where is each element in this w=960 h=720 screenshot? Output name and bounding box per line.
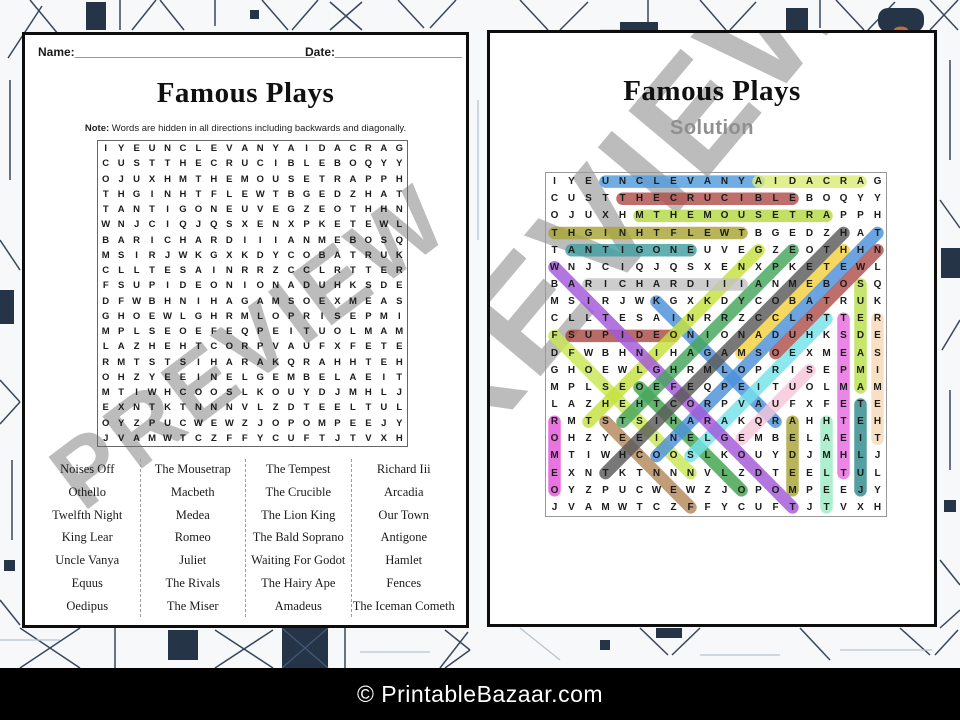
- grid-letter: S: [113, 248, 128, 263]
- grid-letter: D: [716, 293, 733, 310]
- grid-letter: I: [191, 294, 206, 309]
- grid-letter: U: [750, 499, 767, 516]
- grid-letter: H: [206, 172, 221, 187]
- grid-letter: W: [160, 431, 175, 446]
- grid-letter: F: [98, 278, 113, 293]
- grid-letter: E: [129, 141, 144, 156]
- grid-letter: B: [750, 224, 767, 241]
- grid-letter: X: [283, 217, 298, 232]
- grid-letter: O: [801, 379, 818, 396]
- grid-letter: D: [784, 173, 801, 190]
- grid-letter: Z: [580, 396, 597, 413]
- grid-letter: V: [268, 339, 283, 354]
- grid-letter: D: [784, 447, 801, 464]
- grid-letter: E: [614, 430, 631, 447]
- grid-letter: K: [252, 385, 267, 400]
- grid-letter: E: [237, 187, 252, 202]
- grid-letter: R: [299, 309, 314, 324]
- grid-letter: E: [191, 324, 206, 339]
- grid-letter: Q: [835, 190, 852, 207]
- grid-letter: G: [648, 362, 665, 379]
- grid-letter: L: [546, 396, 563, 413]
- grid-letter: T: [614, 413, 631, 430]
- grid-letter: S: [222, 217, 237, 232]
- grid-letter: Z: [268, 400, 283, 415]
- grid-letter: I: [869, 362, 886, 379]
- grid-letter: O: [175, 324, 190, 339]
- grid-letter: I: [160, 202, 175, 217]
- grid-letter: B: [345, 233, 360, 248]
- grid-letter: N: [206, 370, 221, 385]
- word-list-column: Richard IiiArcadiaOur TownAntigoneHamlet…: [351, 459, 457, 617]
- grid-letter: W: [716, 224, 733, 241]
- grid-letter: F: [682, 499, 699, 516]
- grid-letter: S: [631, 310, 648, 327]
- grid-letter: N: [682, 465, 699, 482]
- grid-letter: A: [852, 173, 869, 190]
- grid-letter: A: [283, 233, 298, 248]
- grid-letter: F: [237, 431, 252, 446]
- grid-letter: E: [191, 156, 206, 171]
- grid-letter: E: [330, 217, 345, 232]
- grid-letter: A: [716, 344, 733, 361]
- grid-letter: M: [283, 370, 298, 385]
- grid-letter: G: [546, 362, 563, 379]
- grid-letter: B: [283, 187, 298, 202]
- grid-letter: C: [175, 385, 190, 400]
- grid-letter: A: [852, 344, 869, 361]
- grid-letter: A: [750, 327, 767, 344]
- grid-letter: E: [330, 233, 345, 248]
- word-list-column: The TempestThe CrucibleThe Lion KingThe …: [245, 459, 351, 617]
- grid-letter: A: [113, 233, 128, 248]
- grid-letter: A: [750, 276, 767, 293]
- grid-letter: U: [160, 416, 175, 431]
- grid-letter: E: [835, 482, 852, 499]
- grid-letter: E: [144, 309, 159, 324]
- solution-label: Solution: [490, 117, 934, 140]
- word-list-item: Our Town: [352, 506, 457, 525]
- grid-letter: O: [206, 385, 221, 400]
- grid-letter: C: [546, 310, 563, 327]
- grid-letter: L: [767, 190, 784, 207]
- solution-page-title: Famous Plays: [490, 75, 934, 108]
- grid-letter: H: [144, 339, 159, 354]
- grid-letter: R: [361, 248, 376, 263]
- grid-letter: C: [268, 431, 283, 446]
- grid-letter: Y: [767, 447, 784, 464]
- grid-letter: T: [98, 187, 113, 202]
- grid-letter: U: [283, 431, 298, 446]
- grid-letter: H: [665, 207, 682, 224]
- grid-letter: L: [852, 447, 869, 464]
- grid-letter: W: [191, 416, 206, 431]
- grid-letter: U: [852, 293, 869, 310]
- grid-letter: A: [376, 324, 391, 339]
- grid-letter: L: [252, 309, 267, 324]
- grid-letter: J: [580, 259, 597, 276]
- grid-letter: T: [563, 447, 580, 464]
- grid-letter: M: [546, 379, 563, 396]
- grid-letter: B: [299, 370, 314, 385]
- grid-letter: C: [191, 431, 206, 446]
- grid-letter: E: [597, 362, 614, 379]
- grid-letter: B: [144, 294, 159, 309]
- grid-letter: T: [191, 187, 206, 202]
- grid-letter: A: [237, 141, 252, 156]
- grid-letter: V: [716, 242, 733, 259]
- grid-letter: T: [345, 202, 360, 217]
- grid-letter: N: [191, 400, 206, 415]
- grid-letter: I: [376, 370, 391, 385]
- grid-letter: J: [801, 499, 818, 516]
- grid-letter: T: [191, 172, 206, 187]
- solution-grid: IYEUNCLEVANYAIDACRAGCUSTTHECRUCIBLEBOQYY…: [545, 172, 887, 517]
- grid-letter: M: [869, 379, 886, 396]
- grid-letter: Q: [361, 156, 376, 171]
- grid-letter: A: [580, 499, 597, 516]
- grid-letter: Y: [716, 499, 733, 516]
- grid-letter: U: [597, 173, 614, 190]
- grid-letter: U: [144, 141, 159, 156]
- grid-letter: W: [129, 294, 144, 309]
- grid-letter: N: [563, 259, 580, 276]
- word-list-item: Richard Iii: [352, 460, 457, 479]
- grid-letter: I: [580, 293, 597, 310]
- grid-letter: T: [345, 431, 360, 446]
- grid-letter: P: [283, 309, 298, 324]
- grid-letter: E: [191, 278, 206, 293]
- grid-letter: Q: [699, 379, 716, 396]
- grid-letter: N: [733, 327, 750, 344]
- grid-letter: P: [597, 482, 614, 499]
- grid-letter: K: [699, 293, 716, 310]
- grid-letter: C: [818, 173, 835, 190]
- grid-letter: T: [818, 310, 835, 327]
- name-field: Name:___________________________________…: [38, 45, 315, 59]
- grid-letter: O: [330, 324, 345, 339]
- grid-letter: C: [767, 310, 784, 327]
- grid-letter: O: [546, 430, 563, 447]
- grid-letter: C: [206, 339, 221, 354]
- grid-letter: T: [314, 172, 329, 187]
- grid-letter: Y: [252, 431, 267, 446]
- grid-letter: Q: [175, 217, 190, 232]
- grid-letter: E: [160, 324, 175, 339]
- word-list-item: Oedipus: [35, 597, 140, 616]
- grid-letter: O: [299, 416, 314, 431]
- grid-letter: N: [268, 217, 283, 232]
- grid-letter: R: [546, 413, 563, 430]
- grid-letter: C: [733, 499, 750, 516]
- grid-letter: E: [268, 370, 283, 385]
- grid-letter: W: [144, 385, 159, 400]
- grid-letter: P: [835, 362, 852, 379]
- grid-letter: I: [665, 310, 682, 327]
- grid-letter: J: [563, 207, 580, 224]
- grid-letter: M: [113, 355, 128, 370]
- grid-letter: D: [376, 278, 391, 293]
- grid-letter: L: [252, 400, 267, 415]
- grid-letter: F: [206, 324, 221, 339]
- grid-letter: E: [580, 173, 597, 190]
- grid-letter: U: [580, 327, 597, 344]
- grid-letter: A: [563, 242, 580, 259]
- grid-letter: A: [283, 278, 298, 293]
- grid-letter: M: [852, 362, 869, 379]
- grid-letter: S: [392, 294, 407, 309]
- grid-letter: N: [682, 310, 699, 327]
- grid-letter: W: [546, 259, 563, 276]
- grid-letter: P: [299, 217, 314, 232]
- grid-letter: P: [750, 482, 767, 499]
- grid-letter: M: [376, 309, 391, 324]
- grid-letter: I: [268, 156, 283, 171]
- grid-letter: K: [392, 248, 407, 263]
- grid-letter: G: [716, 430, 733, 447]
- grid-letter: V: [682, 173, 699, 190]
- grid-letter: U: [376, 248, 391, 263]
- grid-letter: M: [144, 431, 159, 446]
- word-list-item: The Mousetrap: [141, 460, 246, 479]
- grid-letter: S: [801, 362, 818, 379]
- grid-letter: M: [98, 324, 113, 339]
- grid-letter: O: [580, 362, 597, 379]
- grid-letter: T: [580, 413, 597, 430]
- grid-letter: I: [648, 430, 665, 447]
- grid-letter: A: [852, 379, 869, 396]
- grid-letter: H: [835, 447, 852, 464]
- grid-letter: D: [175, 278, 190, 293]
- grid-letter: I: [206, 263, 221, 278]
- grid-letter: R: [699, 310, 716, 327]
- grid-letter: N: [614, 224, 631, 241]
- grid-letter: I: [299, 141, 314, 156]
- grid-letter: T: [733, 224, 750, 241]
- grid-letter: A: [191, 233, 206, 248]
- grid-letter: O: [767, 293, 784, 310]
- grid-letter: M: [699, 362, 716, 379]
- grid-letter: T: [767, 379, 784, 396]
- grid-letter: N: [222, 400, 237, 415]
- grid-letter: E: [648, 327, 665, 344]
- grid-letter: N: [129, 202, 144, 217]
- grid-letter: F: [699, 499, 716, 516]
- grid-letter: H: [345, 355, 360, 370]
- grid-letter: U: [113, 156, 128, 171]
- grid-letter: F: [665, 379, 682, 396]
- grid-letter: G: [869, 173, 886, 190]
- grid-letter: T: [597, 465, 614, 482]
- grid-letter: B: [801, 190, 818, 207]
- word-list-item: The Bald Soprano: [246, 528, 351, 547]
- grid-letter: R: [330, 172, 345, 187]
- grid-letter: M: [835, 379, 852, 396]
- grid-letter: T: [361, 355, 376, 370]
- grid-letter: Z: [767, 242, 784, 259]
- grid-letter: Q: [750, 413, 767, 430]
- grid-letter: L: [113, 263, 128, 278]
- grid-letter: T: [631, 465, 648, 482]
- grid-letter: E: [222, 202, 237, 217]
- grid-letter: E: [801, 465, 818, 482]
- grid-letter: M: [563, 413, 580, 430]
- word-list-item: Waiting For Godot: [246, 551, 351, 570]
- grid-letter: F: [784, 396, 801, 413]
- grid-letter: L: [818, 465, 835, 482]
- grid-letter: X: [330, 294, 345, 309]
- page-title: Famous Plays: [25, 77, 466, 110]
- grid-letter: L: [716, 362, 733, 379]
- grid-letter: E: [631, 430, 648, 447]
- grid-letter: O: [818, 190, 835, 207]
- grid-letter: K: [191, 248, 206, 263]
- grid-letter: T: [784, 207, 801, 224]
- grid-letter: L: [345, 400, 360, 415]
- grid-letter: N: [175, 294, 190, 309]
- grid-letter: Z: [580, 430, 597, 447]
- grid-letter: O: [129, 309, 144, 324]
- grid-letter: W: [597, 447, 614, 464]
- word-list-item: The Miser: [141, 597, 246, 616]
- grid-letter: Z: [699, 482, 716, 499]
- grid-letter: A: [330, 248, 345, 263]
- grid-letter: N: [733, 259, 750, 276]
- grid-letter: H: [563, 224, 580, 241]
- grid-letter: B: [283, 156, 298, 171]
- date-line: ___________________: [335, 45, 462, 59]
- grid-letter: G: [237, 294, 252, 309]
- grid-letter: N: [268, 278, 283, 293]
- grid-letter: I: [784, 362, 801, 379]
- solution-page: PREVIEW Famous Plays Solution IYEUNCLEVA…: [487, 30, 937, 627]
- grid-letter: N: [580, 465, 597, 482]
- grid-letter: Q: [283, 355, 298, 370]
- grid-letter: I: [614, 242, 631, 259]
- grid-letter: H: [614, 344, 631, 361]
- grid-letter: R: [299, 355, 314, 370]
- grid-letter: Z: [268, 263, 283, 278]
- grid-letter: P: [252, 324, 267, 339]
- grid-letter: G: [206, 248, 221, 263]
- grid-letter: M: [314, 233, 329, 248]
- grid-letter: O: [716, 327, 733, 344]
- grid-letter: E: [268, 202, 283, 217]
- grid-letter: I: [283, 324, 298, 339]
- grid-letter: M: [784, 482, 801, 499]
- grid-letter: U: [580, 207, 597, 224]
- grid-letter: I: [98, 141, 113, 156]
- grid-letter: R: [237, 355, 252, 370]
- grid-letter: R: [361, 141, 376, 156]
- grid-letter: I: [750, 379, 767, 396]
- grid-letter: W: [98, 217, 113, 232]
- grid-letter: M: [818, 344, 835, 361]
- grid-letter: V: [113, 431, 128, 446]
- grid-letter: N: [614, 173, 631, 190]
- grid-letter: H: [175, 339, 190, 354]
- grid-letter: T: [818, 293, 835, 310]
- grid-letter: L: [631, 362, 648, 379]
- grid-letter: I: [129, 385, 144, 400]
- grid-letter: A: [801, 173, 818, 190]
- grid-letter: M: [361, 324, 376, 339]
- grid-letter: C: [665, 190, 682, 207]
- word-list-item: Fences: [352, 574, 457, 593]
- grid-letter: T: [268, 187, 283, 202]
- word-list-item: The Iceman Cometh: [352, 597, 457, 616]
- grid-letter: I: [597, 276, 614, 293]
- grid-letter: I: [852, 430, 869, 447]
- grid-letter: E: [175, 370, 190, 385]
- grid-letter: E: [682, 242, 699, 259]
- grid-letter: U: [699, 190, 716, 207]
- grid-letter: E: [682, 207, 699, 224]
- grid-letter: W: [682, 482, 699, 499]
- grid-letter: Y: [733, 173, 750, 190]
- grid-letter: S: [283, 172, 298, 187]
- grid-letter: V: [252, 202, 267, 217]
- grid-letter: W: [648, 482, 665, 499]
- grid-letter: L: [869, 465, 886, 482]
- grid-letter: L: [299, 156, 314, 171]
- grid-letter: S: [682, 447, 699, 464]
- grid-letter: C: [631, 447, 648, 464]
- grid-letter: R: [835, 293, 852, 310]
- word-list-item: Equus: [35, 574, 140, 593]
- grid-letter: O: [835, 276, 852, 293]
- grid-letter: T: [345, 263, 360, 278]
- grid-letter: E: [716, 259, 733, 276]
- grid-letter: J: [801, 447, 818, 464]
- grid-letter: U: [784, 379, 801, 396]
- grid-letter: F: [546, 327, 563, 344]
- grid-letter: A: [222, 355, 237, 370]
- grid-letter: I: [733, 276, 750, 293]
- grid-letter: E: [361, 339, 376, 354]
- grid-letter: H: [631, 276, 648, 293]
- grid-letter: G: [580, 224, 597, 241]
- grid-letter: Z: [129, 416, 144, 431]
- grid-letter: A: [699, 173, 716, 190]
- grid-letter: A: [376, 141, 391, 156]
- grid-letter: H: [113, 309, 128, 324]
- grid-letter: D: [801, 224, 818, 241]
- grid-letter: Y: [144, 370, 159, 385]
- grid-letter: H: [563, 362, 580, 379]
- grid-letter: N: [206, 400, 221, 415]
- grid-letter: J: [852, 482, 869, 499]
- grid-letter: L: [129, 324, 144, 339]
- grid-letter: T: [314, 431, 329, 446]
- grid-letter: M: [784, 276, 801, 293]
- name-line: ____________________________________: [75, 45, 315, 59]
- grid-letter: H: [175, 156, 190, 171]
- grid-letter: Q: [237, 324, 252, 339]
- grid-letter: L: [818, 379, 835, 396]
- grid-letter: F: [563, 344, 580, 361]
- grid-letter: G: [699, 344, 716, 361]
- grid-letter: I: [648, 344, 665, 361]
- grid-letter: I: [648, 413, 665, 430]
- grid-letter: L: [392, 400, 407, 415]
- grid-letter: I: [268, 233, 283, 248]
- grid-letter: A: [682, 344, 699, 361]
- grid-letter: V: [563, 499, 580, 516]
- grid-letter: C: [175, 141, 190, 156]
- grid-letter: C: [160, 233, 175, 248]
- grid-letter: E: [314, 187, 329, 202]
